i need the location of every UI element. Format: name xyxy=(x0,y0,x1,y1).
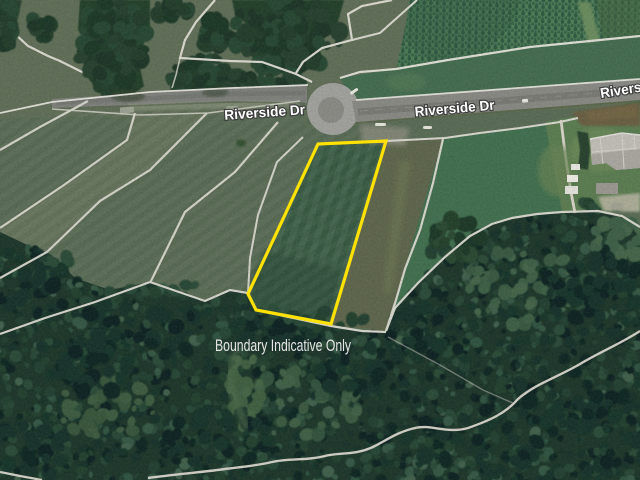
svg-text:Boundary Indicative Only: Boundary Indicative Only xyxy=(215,336,351,355)
